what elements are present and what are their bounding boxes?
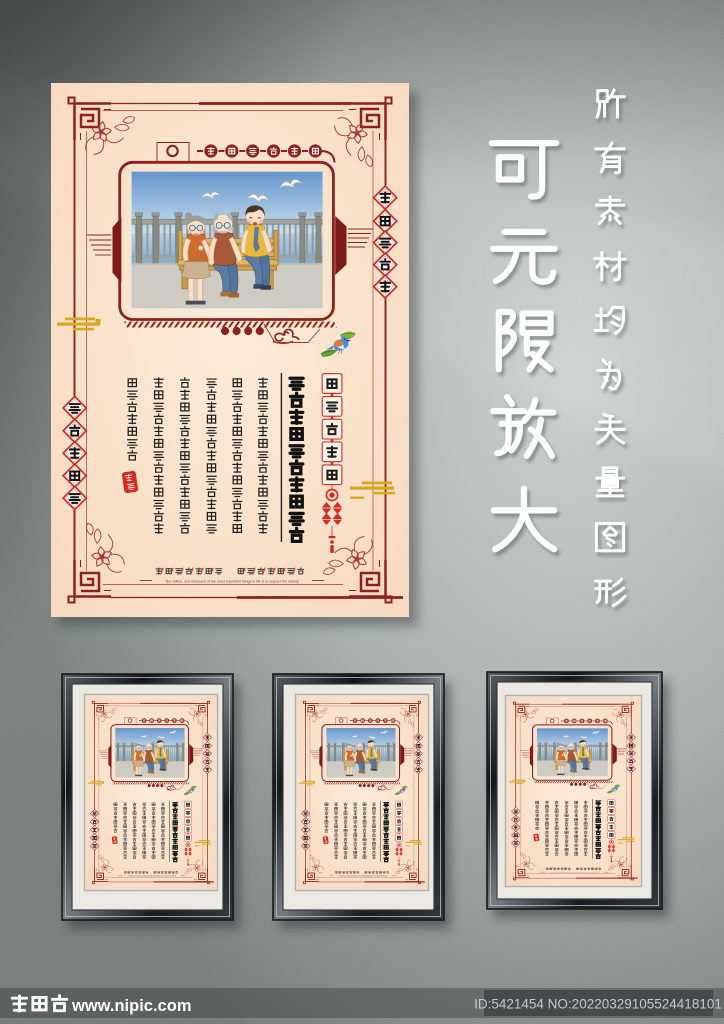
svg-text:www.nipic.com: www.nipic.com bbox=[71, 997, 192, 1015]
svg-text:ID:5421454 NO:2022032910552441: ID:5421454 NO:20220329105524418101 bbox=[474, 997, 722, 1012]
